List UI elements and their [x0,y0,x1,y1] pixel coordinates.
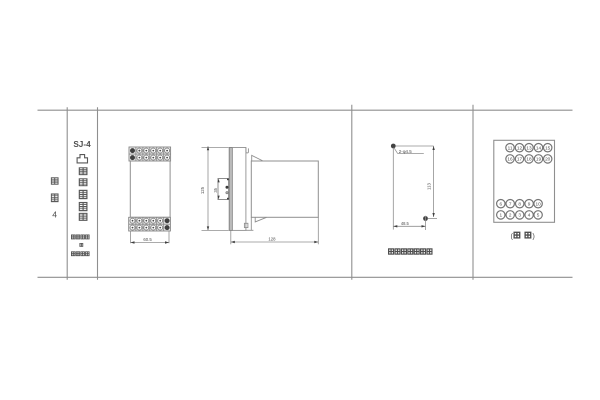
svg-text:9: 9 [528,201,531,206]
svg-text:): ) [532,232,534,241]
svg-text:125: 125 [200,186,205,194]
svg-text:4: 4 [528,213,531,218]
svg-text:2-φ4.5: 2-φ4.5 [399,149,412,154]
svg-text:2: 2 [509,213,512,218]
svg-text:16: 16 [507,157,513,162]
svg-text:7: 7 [509,201,512,206]
svg-text:35: 35 [213,187,218,192]
svg-text:128: 128 [268,236,276,241]
svg-text:8: 8 [518,201,521,206]
svg-text:18: 18 [526,157,532,162]
svg-text:4: 4 [52,210,57,220]
svg-text:20: 20 [545,157,551,162]
svg-text:60.5: 60.5 [143,237,152,242]
svg-text:15: 15 [545,145,551,150]
svg-text:19: 19 [536,157,542,162]
svg-text:13: 13 [526,145,532,150]
svg-text:14: 14 [536,145,542,150]
svg-text:11: 11 [508,145,513,150]
svg-text:SJ-4: SJ-4 [73,140,91,149]
svg-text:6: 6 [499,201,502,206]
svg-text:(: ( [511,232,514,241]
svg-text:12: 12 [517,145,523,150]
svg-text:17: 17 [517,157,523,162]
svg-text:1: 1 [499,213,502,218]
svg-text:10: 10 [535,201,541,206]
svg-text:48.5: 48.5 [401,221,410,226]
svg-text:113: 113 [427,182,432,189]
svg-text:5: 5 [537,213,540,218]
svg-text:3: 3 [518,213,521,218]
